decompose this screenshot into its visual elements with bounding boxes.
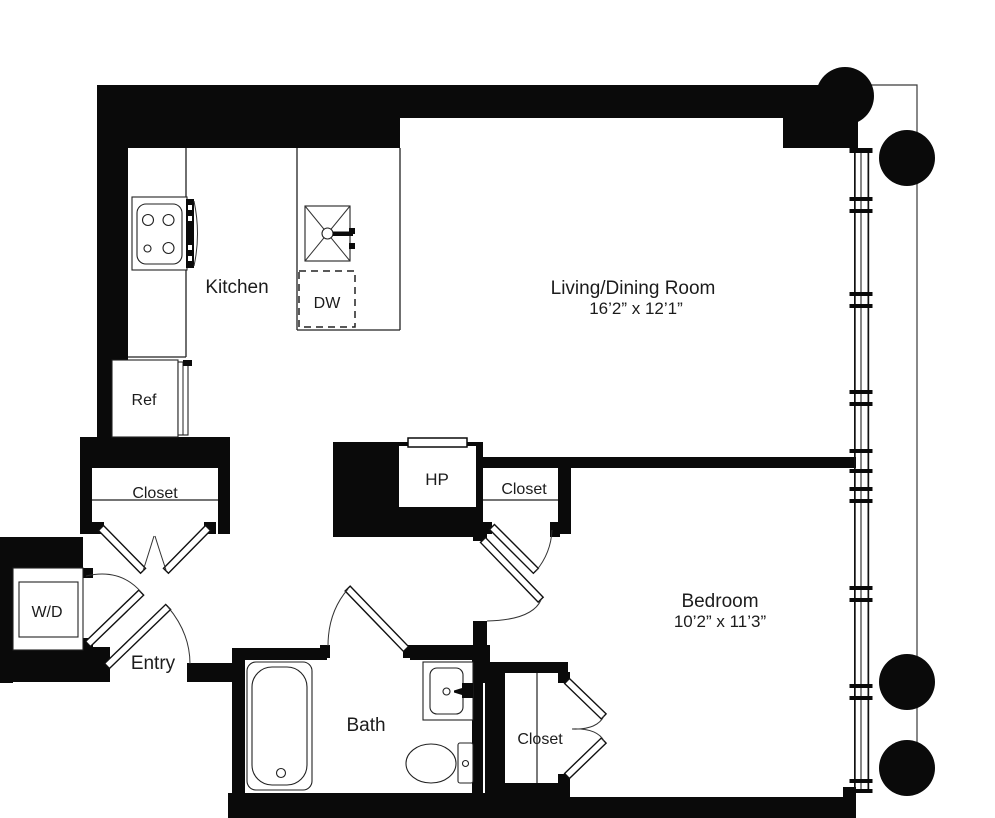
bath-label: Bath — [346, 715, 385, 736]
window-mullion — [850, 469, 873, 473]
window-mullion — [850, 499, 873, 503]
wall-wd-top — [0, 537, 83, 568]
refrigerator: Ref — [112, 360, 192, 437]
column-upper-right — [879, 130, 935, 186]
bedroom-closet-door-bottom — [565, 738, 607, 778]
window-mullion — [850, 209, 873, 213]
window-mullion — [850, 586, 873, 590]
hall-closet-door-arc — [536, 530, 552, 571]
washer-dryer-label: W/D — [31, 604, 62, 621]
window-mullion — [850, 789, 873, 793]
wall-bath-top-left — [232, 648, 327, 660]
refrigerator-handle — [183, 360, 192, 366]
floor-plan: DW Ref HP W/D — [0, 0, 995, 818]
living-room-dimensions: 16’2” x 12’1” — [589, 299, 683, 318]
wd-door-arc — [86, 574, 141, 592]
entry-closet-label: Closet — [132, 485, 178, 502]
stove-burner — [144, 245, 151, 252]
window-mullion — [850, 598, 873, 602]
stove-door-detail — [188, 245, 192, 250]
sink-faucet-knob — [349, 228, 355, 234]
wall-top-living — [400, 85, 860, 118]
wall-living-bedroom-divider — [483, 457, 856, 468]
entry-closet-door-right — [163, 526, 210, 574]
sink-drain — [322, 228, 333, 239]
wall-bottom-bath — [228, 793, 520, 818]
sink-faucet-knob — [349, 243, 355, 249]
wall-bottom-bedroom — [520, 797, 856, 818]
heat-pump: HP — [398, 438, 477, 508]
window-mullion — [850, 684, 873, 688]
window-wall — [850, 148, 873, 793]
dishwasher-label: DW — [314, 295, 342, 312]
wall-top-kitchen — [97, 85, 400, 148]
bath-door-arc — [328, 589, 348, 646]
stove-burner — [163, 215, 174, 226]
heat-pump-vent — [408, 438, 467, 447]
stove-burner — [143, 215, 154, 226]
bedroom-dimensions: 10’2” x 11’3” — [674, 612, 767, 631]
bath-vanity — [423, 662, 473, 720]
wall-entry-closet-left — [80, 468, 92, 534]
floor-plan-canvas: DW Ref HP W/D — [0, 0, 995, 818]
vanity-drain — [443, 688, 450, 695]
entry-closet-door-arcs — [143, 536, 166, 571]
wall-bath-left — [232, 648, 245, 793]
washer-dryer: W/D — [13, 568, 83, 650]
bedroom-door-arc — [487, 600, 541, 621]
jamb-bath-left — [320, 645, 330, 658]
wall-bedroom-closet-left — [485, 662, 505, 785]
stove-door-detail — [188, 205, 192, 210]
bedroom-closet-door-arcs — [572, 716, 604, 741]
window-mullion — [850, 148, 873, 153]
window-mullion — [850, 304, 873, 308]
window-mullion — [850, 292, 873, 296]
window-mullion — [850, 402, 873, 406]
stove-burner — [163, 243, 174, 254]
window-mullion — [850, 390, 873, 394]
stove-door-detail — [188, 256, 192, 261]
window-mullion — [850, 696, 873, 700]
stove-door-detail — [188, 216, 192, 221]
window-mullion — [850, 197, 873, 201]
entry-closet-door-left — [99, 526, 146, 574]
wall-entry-closet-top — [80, 437, 230, 468]
bathtub — [247, 662, 312, 790]
column-lower-right-2 — [879, 740, 935, 796]
stove-door-arc — [194, 201, 198, 266]
toilet-flush — [463, 761, 469, 767]
entry-label: Entry — [131, 653, 176, 674]
wall-entry-closet-right — [218, 468, 230, 534]
window-mullion — [850, 449, 873, 453]
hall-closet-label: Closet — [501, 481, 547, 498]
column-lower-right-1 — [879, 654, 935, 710]
kitchen-label: Kitchen — [205, 277, 268, 298]
window-mullion — [850, 779, 873, 783]
heat-pump-label: HP — [425, 470, 449, 489]
refrigerator-label: Ref — [132, 392, 157, 409]
toilet — [406, 743, 473, 783]
wall-bath-right — [472, 683, 483, 793]
bath-door — [345, 586, 408, 651]
stove-cooktop — [137, 204, 182, 264]
bedroom-closet-label: Closet — [517, 731, 563, 748]
toilet-bowl — [406, 744, 456, 783]
bedroom-label: Bedroom — [681, 591, 758, 612]
living-room-label: Living/Dining Room — [551, 278, 716, 299]
kitchen-sink — [305, 206, 355, 261]
dishwasher: DW — [299, 271, 355, 327]
bathtub-inner — [252, 667, 307, 785]
wall-wd-bottom — [0, 647, 110, 682]
stove — [132, 197, 198, 270]
bedroom-closet-door-top — [565, 678, 607, 718]
column-top — [816, 67, 874, 125]
bathtub-drain — [277, 769, 286, 778]
window-mullion — [850, 487, 873, 491]
